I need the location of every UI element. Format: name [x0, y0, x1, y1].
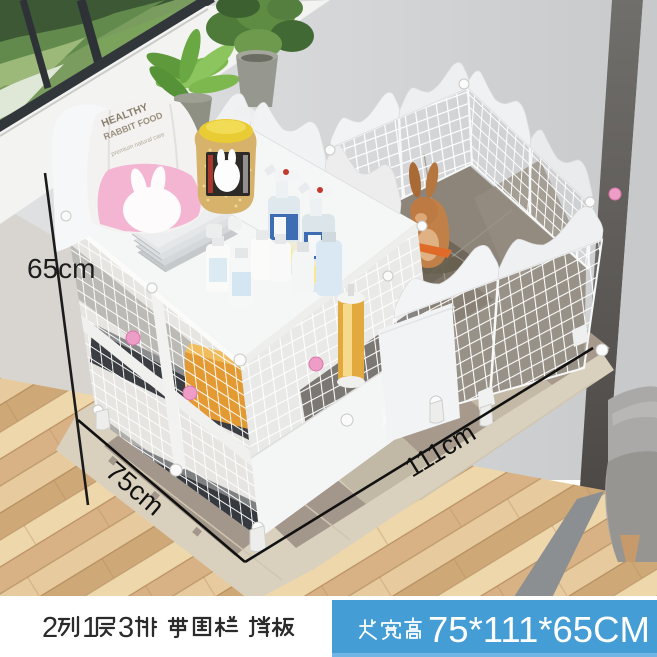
svg-text:2: 2 — [42, 612, 58, 644]
svg-text:1: 1 — [82, 612, 98, 644]
svg-text:65cm: 65cm — [27, 253, 95, 284]
svg-text:75*111*65CM: 75*111*65CM — [428, 609, 650, 650]
svg-text:3: 3 — [118, 612, 134, 644]
